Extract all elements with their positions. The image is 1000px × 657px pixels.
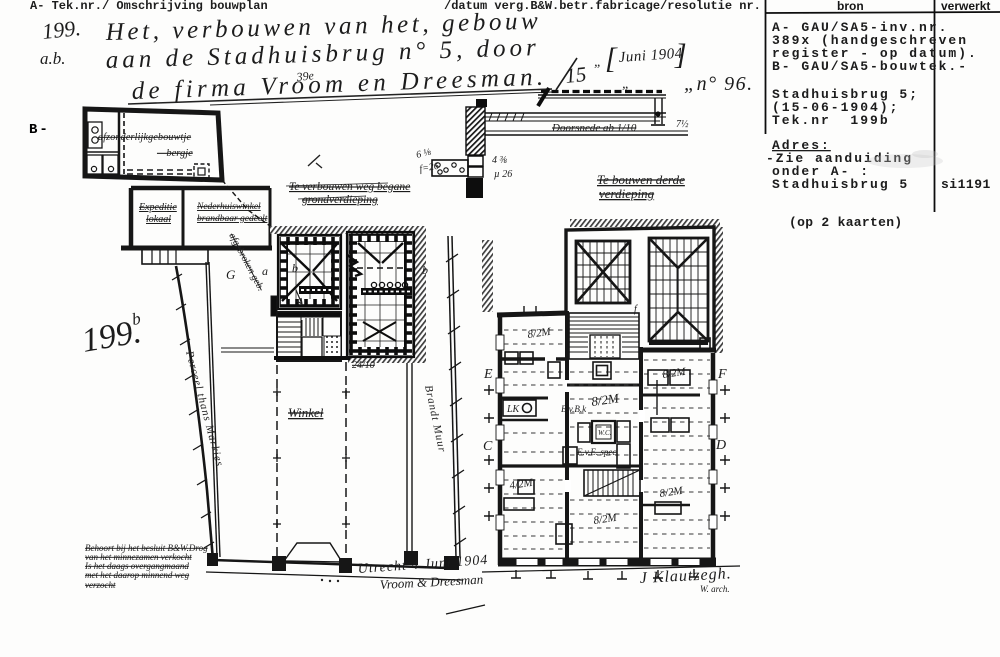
svg-text:Perceel thans Markies: Perceel thans Markies [183, 349, 226, 469]
svg-text:B.v.B.k: B.v.B.k [561, 404, 587, 414]
svg-text:Vroom & Dreesman: Vroom & Dreesman [379, 572, 483, 592]
svg-text:Brandt Muur: Brandt Muur [422, 384, 448, 454]
svg-text:b: b [292, 261, 298, 275]
svg-text:Nederhuiswinkel: Nederhuiswinkel [196, 202, 261, 212]
svg-text:Stadhuisbrug 5: Stadhuisbrug 5 [772, 177, 909, 192]
svg-text:lokaal: lokaal [146, 214, 171, 225]
svg-text:8/2M: 8/2M [659, 485, 684, 500]
svg-text:E: E [483, 367, 493, 382]
svg-text:Winkel: Winkel [288, 405, 324, 420]
svg-text:Expeditie: Expeditie [138, 202, 177, 213]
svg-text:f=26: f=26 [419, 161, 440, 175]
svg-text:15: 15 [564, 62, 587, 88]
svg-text:Te verbouwen weg begane: Te verbouwen weg begane [289, 181, 410, 193]
svg-text:afgebroken geb.: afgebroken geb. [226, 231, 266, 293]
svg-text:199.: 199. [41, 15, 82, 44]
svg-text:verzocht: verzocht [85, 580, 116, 590]
svg-text:grondverdieping: grondverdieping [302, 194, 378, 206]
svg-text:b: b [422, 263, 428, 277]
svg-text:LK: LK [506, 404, 521, 415]
svg-text:„: „ [594, 55, 602, 70]
svg-text:B-: B- [29, 122, 50, 138]
svg-text:verwerkt: verwerkt [941, 0, 990, 13]
svg-text:A- Tek.nr./ Omschrijving bouwp: A- Tek.nr./ Omschrijving bouwplan [30, 0, 268, 13]
svg-text:Te bouwen derde: Te bouwen derde [597, 172, 685, 187]
svg-text:G: G [226, 267, 236, 282]
svg-text:[: [ [605, 42, 618, 75]
svg-text:(op 2 kaarten): (op 2 kaarten) [789, 215, 902, 230]
svg-text:bron: bron [837, 0, 864, 13]
svg-text:brandbaar gedeelt: brandbaar gedeelt [197, 214, 268, 224]
svg-text:C: C [483, 439, 493, 454]
svg-text:—bergje: —bergje [156, 148, 193, 159]
svg-text:7½: 7½ [676, 119, 689, 130]
svg-text:met het daarop minnend weg: met het daarop minnend weg [85, 570, 190, 580]
svg-text:W. arch.: W. arch. [700, 584, 730, 594]
svg-text:F: F [717, 367, 727, 382]
svg-text:verdieping: verdieping [599, 186, 655, 201]
svg-text:]: ] [674, 38, 687, 71]
svg-text:8/2M: 8/2M [662, 366, 687, 381]
svg-text:„: „ [622, 77, 630, 92]
svg-text:a.b.: a.b. [40, 49, 66, 68]
svg-text:„n° 96.: „n° 96. [684, 73, 754, 95]
svg-text:a: a [262, 264, 268, 278]
svg-text:8/2M: 8/2M [590, 390, 620, 409]
svg-text:Tek.nr 199b: Tek.nr 199b [772, 113, 890, 128]
svg-text:4/2M: 4/2M [509, 477, 534, 492]
svg-text:si1191: si1191 [941, 177, 991, 192]
svg-text:µ 26: µ 26 [494, 169, 512, 180]
svg-text:8/2M: 8/2M [527, 326, 552, 341]
svg-text:W.C.: W.C. [598, 429, 612, 437]
svg-text:6 ⅛: 6 ⅛ [415, 146, 433, 160]
svg-text:E.v.E. spec: E.v.E. spec [576, 447, 616, 457]
svg-text:24/10: 24/10 [352, 360, 375, 371]
svg-text:D: D [715, 438, 726, 453]
svg-text:B- GAU/SA5-bouwtek.-: B- GAU/SA5-bouwtek.- [772, 59, 968, 74]
svg-text:Doorsnede ab 1/10: Doorsnede ab 1/10 [551, 122, 637, 134]
svg-text:4 ⅜: 4 ⅜ [492, 155, 508, 166]
svg-text:8/2M: 8/2M [593, 512, 618, 527]
svg-text:Juni 1904: Juni 1904 [618, 46, 683, 66]
svg-text:afzonderlijkgebouwtje: afzonderlijkgebouwtje [98, 132, 191, 143]
